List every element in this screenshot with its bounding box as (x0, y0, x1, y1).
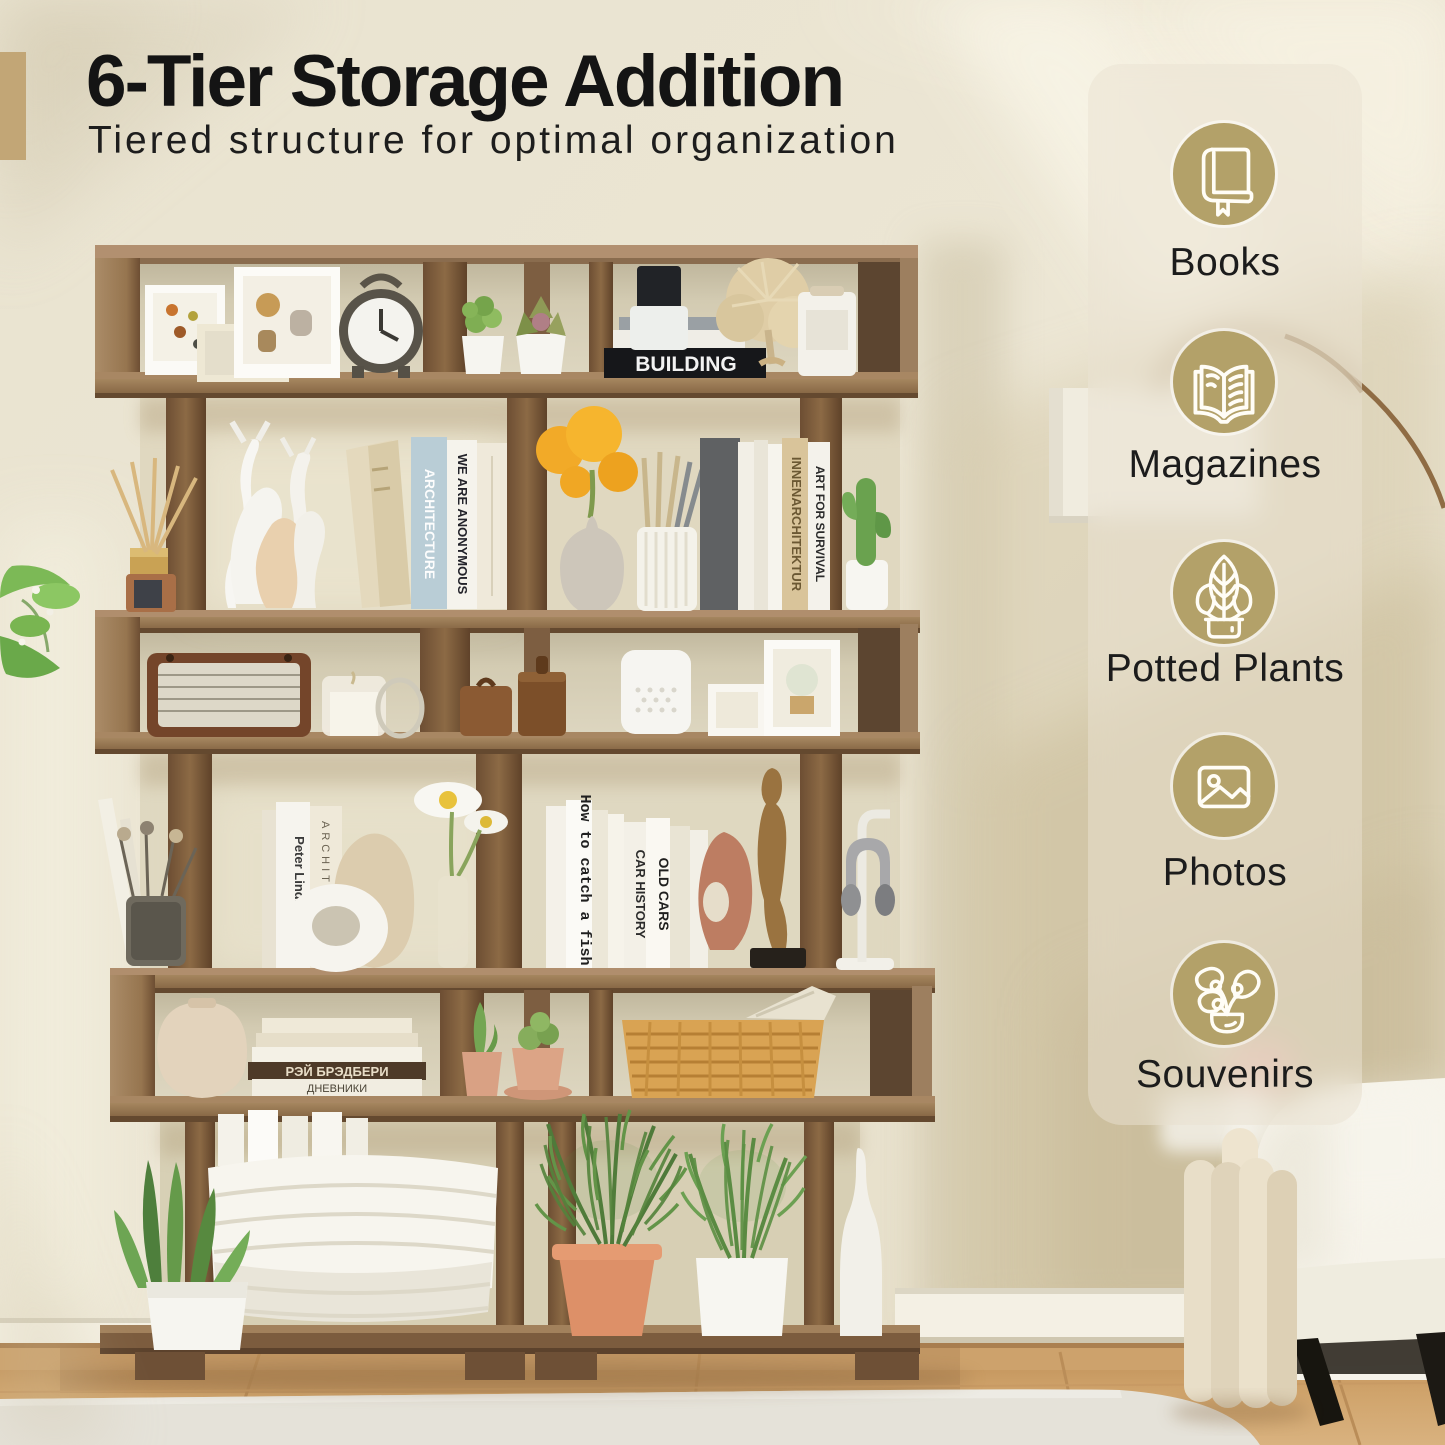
svg-text:ARCHITECTURE: ARCHITECTURE (422, 469, 438, 579)
svg-text:РЭЙ БРЭДБЕРИ: РЭЙ БРЭДБЕРИ (285, 1064, 388, 1079)
svg-text:BUILDING: BUILDING (635, 353, 737, 376)
svg-text:CAR HISTORY: CAR HISTORY (633, 850, 648, 939)
svg-text:INNENARCHITEKTUR: INNENARCHITEKTUR (789, 457, 804, 592)
svg-text:How to catch a fish: How to catch a fish (576, 794, 593, 965)
svg-text:OLD CARS: OLD CARS (656, 857, 672, 930)
svg-text:WE ARE ANONYMOUS: WE ARE ANONYMOUS (455, 454, 470, 595)
svg-text:ДНЕВНИКИ: ДНЕВНИКИ (307, 1083, 367, 1095)
svg-text:ART FOR SURVIVAL: ART FOR SURVIVAL (813, 466, 827, 582)
